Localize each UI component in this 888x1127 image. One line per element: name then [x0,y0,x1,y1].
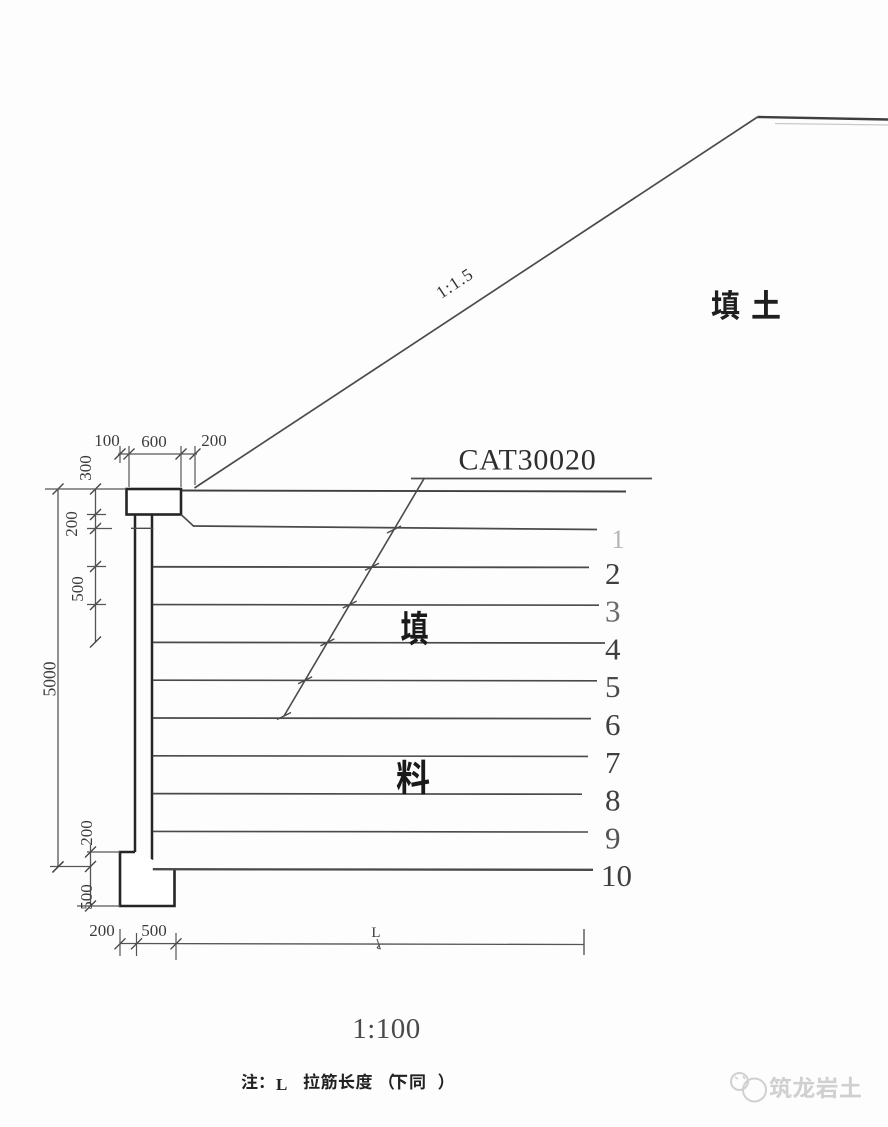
svg-text:200: 200 [77,820,96,846]
svg-text:3: 3 [605,594,621,629]
svg-text:1: 1 [612,525,625,554]
svg-text:7: 7 [605,745,621,780]
svg-text:200: 200 [89,921,115,940]
svg-text:6: 6 [605,707,621,742]
svg-text:500: 500 [68,576,87,602]
svg-text:1:100: 1:100 [352,1013,421,1045]
svg-text:2: 2 [605,556,621,591]
svg-text:5000: 5000 [40,661,60,696]
svg-text:600: 600 [141,432,167,451]
svg-text:200: 200 [201,431,227,450]
svg-text:1:1.5: 1:1.5 [432,263,477,302]
svg-text:L: L [276,1075,287,1094]
svg-text:300: 300 [76,455,95,481]
svg-text:4: 4 [605,631,621,666]
svg-text:500: 500 [77,884,96,910]
svg-text:L: L [371,925,380,941]
svg-text:9: 9 [605,820,621,855]
svg-text:10: 10 [601,858,632,893]
svg-text:500: 500 [141,921,167,940]
svg-text:200: 200 [62,511,81,537]
svg-text:CAT30020: CAT30020 [459,444,597,477]
svg-text:100: 100 [94,431,120,450]
svg-text:5: 5 [605,669,621,704]
svg-text:8: 8 [605,783,621,818]
